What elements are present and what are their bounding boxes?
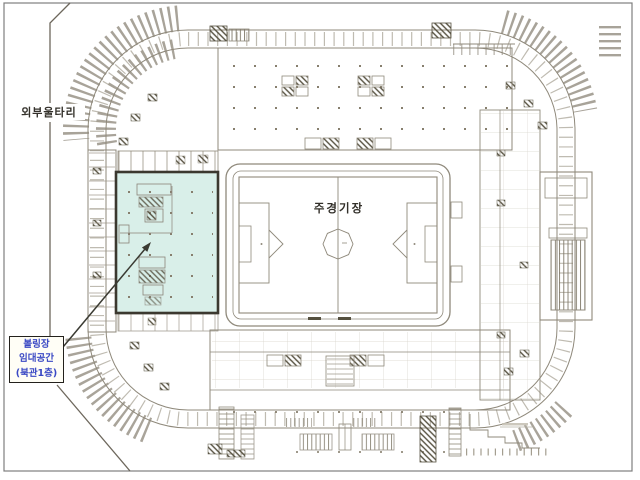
main-field <box>226 164 462 326</box>
bowling-rental-callout: 볼링장 임대공간 (북관1층) <box>9 336 64 383</box>
north-hall <box>218 48 512 150</box>
south-plaza <box>208 407 552 462</box>
outer-fence-label: 외부울타리 <box>13 104 85 120</box>
callout-line-1: 볼링장 <box>23 338 49 352</box>
main-stadium-label: 주경기장 <box>296 200 382 216</box>
floor-plan-page: 외부울타리 주경기장 볼링장 임대공간 (북관1층) <box>0 0 640 480</box>
floor-plan-drawing <box>0 0 640 480</box>
callout-line-3: (북관1층) <box>16 367 58 381</box>
callout-line-2: 임대공간 <box>19 352 54 366</box>
south-hall <box>210 330 510 410</box>
bowling-rental-area <box>116 172 218 313</box>
